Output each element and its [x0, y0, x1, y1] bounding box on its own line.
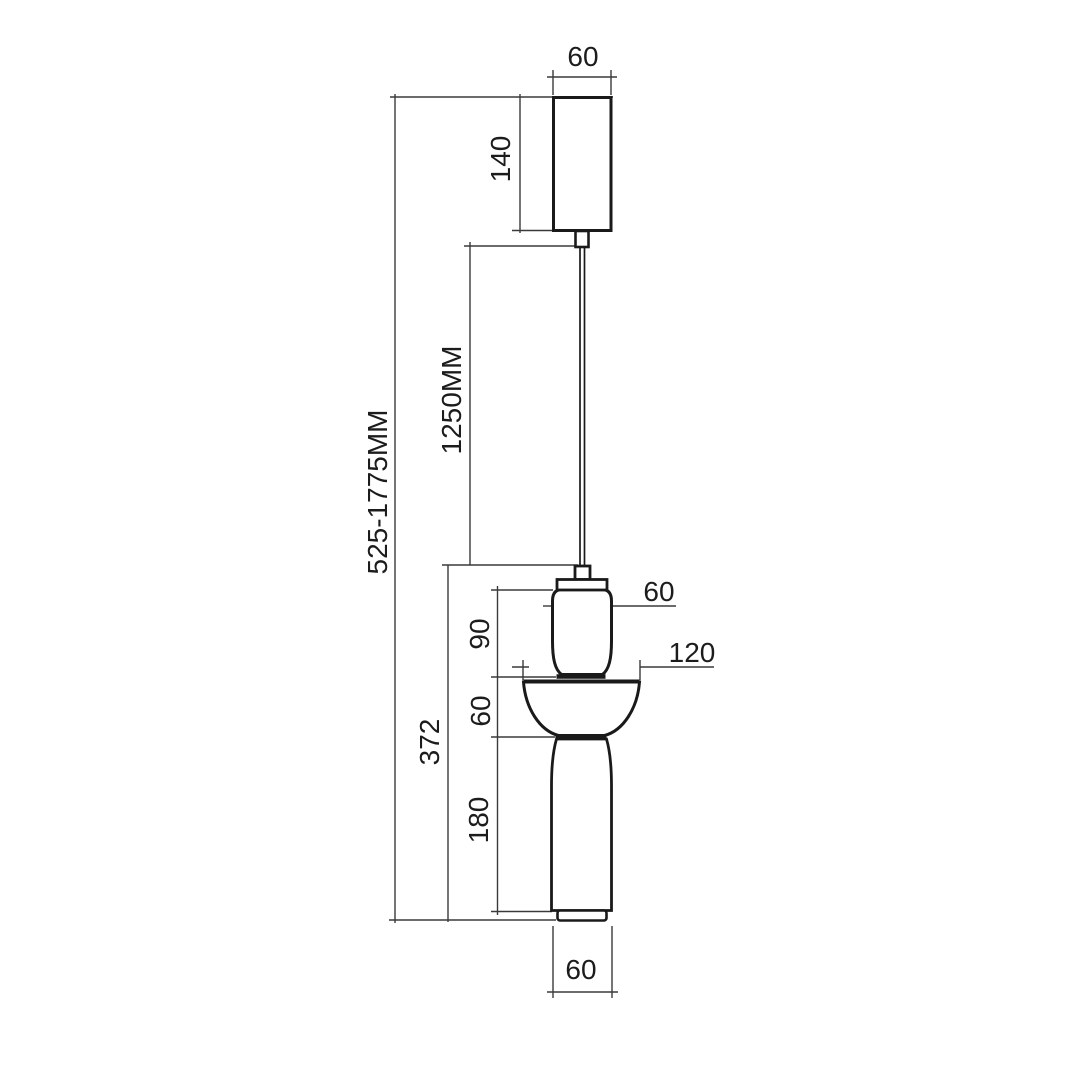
- dim-label-canopy-height: 140: [487, 136, 515, 183]
- lamp-stem-connector: [575, 566, 590, 580]
- canopy-cable-connector: [576, 231, 589, 247]
- diffuser-bowl-outline: [524, 682, 640, 736]
- dim-label-shade-diameter: 120: [669, 639, 716, 667]
- dim-label-head-diameter: 60: [643, 578, 674, 606]
- drawing-linework: [0, 0, 1080, 1080]
- dimension-drawing: 60 140 1250MM 525-1775MM 372 90 60 180 6…: [0, 0, 1080, 1080]
- dim-label-overall-height: 525-1775MM: [364, 410, 392, 575]
- canopy-outline: [554, 98, 612, 231]
- dim-label-body-height: 180: [465, 797, 493, 844]
- dim-label-cable-length: 1250MM: [438, 346, 466, 455]
- lamp-outline: [524, 98, 640, 921]
- dim-label-bottom-diameter: 60: [565, 956, 596, 984]
- dim-label-head-height: 90: [466, 618, 494, 649]
- bottom-cap-outline: [558, 911, 607, 921]
- dim-label-shade-height: 60: [467, 695, 495, 726]
- lamp-cap-step: [557, 580, 607, 591]
- dim-label-canopy-width: 60: [567, 43, 598, 71]
- lamp-head-outline: [553, 590, 612, 675]
- lamp-body-outline: [552, 739, 612, 911]
- dim-label-fixture-height: 372: [416, 719, 444, 766]
